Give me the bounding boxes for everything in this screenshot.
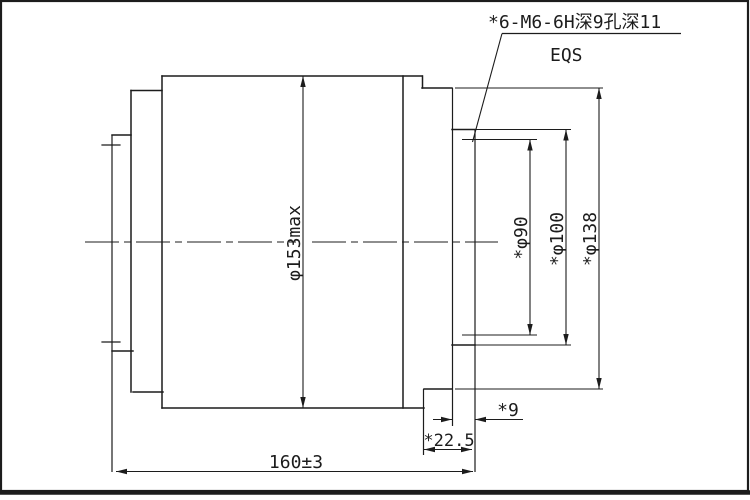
- holes-annotation: *6-M6-6H深9孔深11 EQS: [473, 12, 682, 142]
- arrowhead-up-icon: [563, 130, 568, 141]
- arrowhead-left-icon: [116, 469, 127, 474]
- arrowhead-right-icon: [462, 469, 473, 474]
- arrowhead-down-icon: [300, 397, 305, 408]
- arrowhead-up-icon: [300, 76, 305, 87]
- dimension-flange-diameter: *φ138: [580, 88, 602, 389]
- dim-label-spigot-diameter: *φ100: [547, 212, 568, 266]
- dimension-outer-diameter: φ153max: [284, 76, 306, 408]
- engineering-drawing: φ153max *φ90 *φ100 *φ138 *9 *22.5: [0, 0, 750, 500]
- dim-label-right-section-length: *22.5: [423, 431, 474, 451]
- dim-label-flange-diameter: *φ138: [580, 212, 601, 266]
- arrowhead-down-icon: [563, 334, 568, 345]
- arrowhead-left-icon: [475, 417, 486, 422]
- spacing-note-text: EQS: [550, 45, 583, 66]
- dim-label-spigot-length: *9: [497, 400, 519, 421]
- arrowhead-down-icon: [527, 324, 532, 335]
- dimension-right-section-length: *22.5: [423, 431, 474, 452]
- dimension-bolt-circle: *φ90: [511, 140, 533, 336]
- dimension-spigot-diameter: *φ100: [547, 130, 569, 346]
- dimension-spigot-length: *9: [433, 400, 523, 422]
- holes-note-text: *6-M6-6H深9孔深11: [488, 12, 661, 33]
- dim-label-overall-length: 160±3: [269, 452, 323, 473]
- dimension-overall-length: 160±3: [116, 452, 473, 474]
- dim-label-bolt-circle: *φ90: [511, 216, 532, 259]
- arrowhead-right-icon: [441, 417, 452, 422]
- dim-label-outer-diameter: φ153max: [284, 205, 305, 281]
- arrowhead-up-icon: [527, 140, 532, 151]
- arrowhead-down-icon: [596, 378, 601, 389]
- arrowhead-up-icon: [596, 88, 601, 99]
- drawing-canvas: φ153max *φ90 *φ100 *φ138 *9 *22.5: [0, 0, 750, 500]
